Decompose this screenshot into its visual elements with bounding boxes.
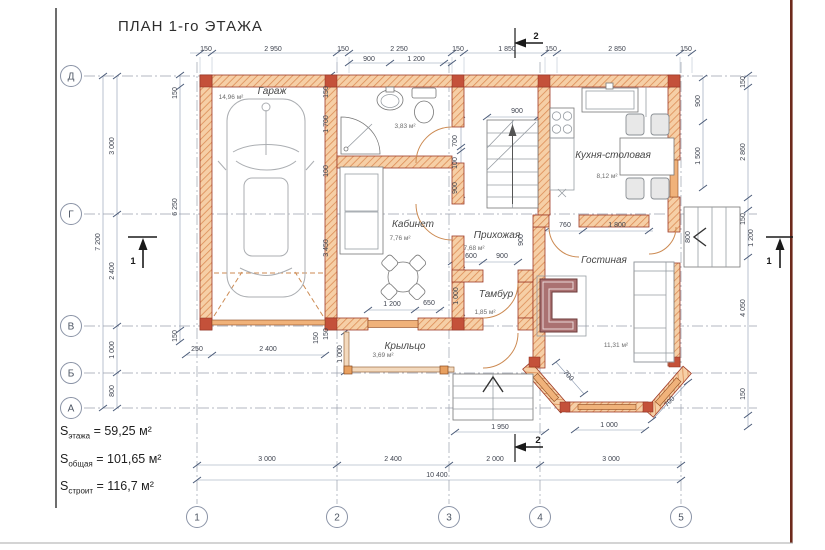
- area-summary-row: Sстроит = 116,7 м²: [60, 475, 161, 503]
- bay-window-center: [578, 405, 636, 410]
- dimension-label: 150: [172, 330, 179, 342]
- kitchen-door-arc: [549, 227, 579, 257]
- section-mark-label: 1: [130, 256, 136, 267]
- kitchen-sink: [582, 88, 638, 112]
- room-area: 7,76 м²: [389, 235, 411, 242]
- kitchen-appliances: [550, 83, 674, 199]
- dimension-label: 900: [496, 253, 508, 260]
- area-summary-row: Sэтажа = 59,25 м²: [60, 420, 161, 448]
- front-steps: [453, 374, 533, 420]
- dimension-label: 1 200: [748, 229, 755, 247]
- dimension-label: 150: [313, 332, 320, 344]
- dimension-label: 900: [695, 95, 702, 107]
- garage-door: [212, 320, 325, 325]
- dimension-label: 650: [423, 300, 435, 307]
- dimension-label: 150: [323, 328, 330, 340]
- sofa: [634, 262, 674, 362]
- axis-label: 5: [678, 513, 684, 524]
- dimension-label: 10 400: [426, 472, 448, 479]
- section-mark-label: 2: [533, 31, 538, 42]
- frame-right-line: [790, 0, 793, 543]
- room-name: Кабинет: [392, 218, 434, 230]
- dimension-label: 150: [172, 87, 179, 99]
- room-name: Гараж: [258, 86, 288, 97]
- dimension-label: 6 250: [172, 198, 179, 216]
- dimension-label: 3 000: [258, 456, 276, 463]
- bay-window-left: [533, 373, 559, 401]
- dimension-label: 3 000: [602, 456, 620, 463]
- dimension-label: 2 950: [264, 46, 282, 53]
- axis-label: 1: [194, 513, 200, 524]
- axis-label: 2: [334, 513, 340, 524]
- axis-label: 4: [537, 513, 543, 524]
- area-summary-row: Sобщая = 101,65 м²: [60, 448, 161, 476]
- dimension-label: 4 050: [740, 299, 747, 317]
- dimension-label: 2 400: [259, 346, 277, 353]
- axis-label: В: [68, 322, 75, 333]
- axis-label: Г: [68, 210, 74, 221]
- dimension-label: 150: [740, 388, 747, 400]
- dimension-label: 150: [337, 46, 349, 53]
- dimension-label: 150: [740, 76, 747, 88]
- room-area: 1,85 м²: [474, 309, 496, 316]
- dimension-label: 1 500: [695, 147, 702, 165]
- office-furniture: [340, 167, 427, 301]
- dimension-label: 1 200: [407, 56, 425, 63]
- toilet-tank: [412, 88, 436, 98]
- room-name: Тамбур: [479, 288, 514, 300]
- dimension-label: 2 250: [390, 46, 408, 53]
- room-area: 8,12 м²: [596, 173, 618, 180]
- room-area: 3,83 м²: [394, 123, 416, 130]
- section-mark-label: 1: [766, 256, 772, 267]
- dimension-label: 1 000: [600, 422, 618, 429]
- dimension-label: 150: [200, 46, 212, 53]
- dimension-label: 1 850: [498, 46, 516, 53]
- area-summary: Sэтажа = 59,25 м² Sобщая = 101,65 м² Sст…: [60, 420, 161, 503]
- entrance-door-arc: [483, 333, 518, 368]
- dimension-label: 1 000: [109, 341, 116, 359]
- side-steps: [684, 207, 740, 267]
- garage-door-swing-dashed: [214, 272, 323, 316]
- axis-label: А: [68, 404, 75, 415]
- dimension-label: 900: [363, 56, 375, 63]
- room-name: Крыльцо: [385, 341, 426, 352]
- dimension-label: 700: [452, 135, 459, 147]
- dimension-label: 1 800: [608, 222, 626, 229]
- dimension-label: 150: [545, 46, 557, 53]
- dimension-label: 150: [323, 86, 330, 98]
- dimension-label: 3 000: [109, 137, 116, 155]
- dimension-label: 760: [559, 222, 571, 229]
- dimension-label: 1 200: [383, 301, 401, 308]
- dimension-label: 2 850: [608, 46, 626, 53]
- dimension-label: 1 000: [453, 287, 460, 305]
- dimension-label: 1 700: [323, 115, 330, 133]
- room-name: Гостиная: [581, 255, 627, 266]
- toilet-bowl: [415, 101, 434, 123]
- dimension-label: 100: [323, 165, 330, 177]
- dimension-label: 2 400: [384, 456, 402, 463]
- dimension-label: 1 950: [491, 424, 509, 431]
- dimension-label: 7 200: [95, 233, 102, 251]
- dimension-label: 2 400: [109, 262, 116, 280]
- room-area: 14,96 м²: [219, 94, 245, 101]
- dimension-label: 150: [452, 46, 464, 53]
- dimension-label: 800: [109, 385, 116, 397]
- room-area: 11,31 м²: [604, 342, 629, 349]
- dimension-label: 100: [452, 157, 459, 169]
- room-area: 3,69 м²: [372, 352, 394, 359]
- room-name: Кухня-столовая: [575, 150, 651, 161]
- dimension-label: 800: [685, 231, 692, 243]
- axis-label: Б: [68, 369, 75, 380]
- dimension-label: 1 000: [337, 345, 344, 363]
- dimension-label: 900: [452, 182, 459, 194]
- dimension-label: 900: [511, 108, 523, 115]
- room-name: Прихожая: [474, 230, 521, 241]
- dimension-label: 2 860: [740, 143, 747, 161]
- axis-label: 3: [446, 513, 452, 524]
- staircase: [487, 120, 538, 208]
- dimension-label: 600: [465, 253, 477, 260]
- axis-label: Д: [68, 72, 75, 83]
- dimension-label: 150: [680, 46, 692, 53]
- floor-plan-page: ПЛАН 1-го ЭТАЖА: [0, 0, 825, 550]
- dimension-label: 150: [740, 213, 747, 225]
- section-mark-label: 2: [535, 435, 540, 446]
- dimension-label: 250: [191, 346, 203, 353]
- dimension-label: 3 450: [323, 239, 330, 257]
- drawing-title: ПЛАН 1-го ЭТАЖА: [118, 18, 263, 35]
- car: [218, 99, 314, 297]
- room-area: 7,68 м²: [463, 245, 485, 252]
- dimension-label: 2 000: [486, 456, 504, 463]
- office-window: [368, 321, 418, 328]
- fireplace: [540, 279, 577, 332]
